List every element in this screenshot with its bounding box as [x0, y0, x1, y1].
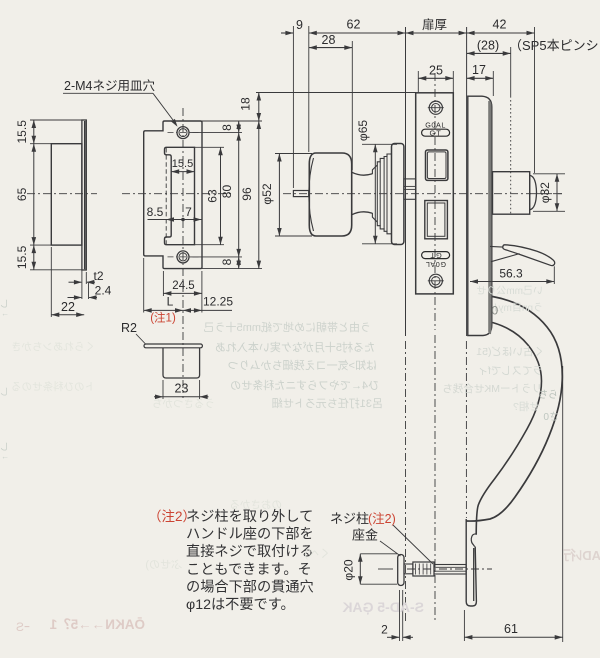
- svg-text:らち: らち: [538, 389, 558, 401]
- svg-text:→: →: [1, 452, 9, 461]
- svg-text:ひ4←でやフらすニた科条せの: ひ4←でやフらすニた科条せの: [230, 378, 379, 392]
- svg-text:く占いほど(51: く占いほど(51: [476, 345, 544, 358]
- svg-text:さ0: さ0: [543, 411, 559, 423]
- svg-text:24.5: 24.5: [172, 280, 194, 292]
- svg-text:φ20: φ20: [342, 559, 356, 580]
- svg-text:8: 8: [220, 124, 234, 131]
- svg-text:しに: しに: [0, 387, 9, 397]
- svg-text:(28): (28): [477, 39, 499, 53]
- svg-text:2-M4ネジ用皿穴: 2-M4ネジ用皿穴: [64, 78, 155, 93]
- svg-text:8.5: 8.5: [147, 205, 164, 219]
- svg-text:ラてスしでfィ: ラてスしでfィ: [477, 365, 543, 377]
- svg-text:62: 62: [347, 18, 361, 32]
- svg-text:の場合下部の貫通穴: の場合下部の貫通穴: [186, 578, 314, 595]
- svg-text:15.5: 15.5: [172, 158, 193, 170]
- svg-text:ぶせの): ぶせの): [145, 558, 182, 571]
- svg-text:ŌAKN→→5？1: ŌAKN→→5？1: [49, 617, 145, 632]
- svg-text:S-AD-5 ĢAK: S-AD-5 ĢAK: [342, 599, 424, 615]
- svg-text:56.3: 56.3: [499, 267, 523, 281]
- svg-text:96: 96: [240, 187, 254, 201]
- svg-text:くべ): くべ): [304, 548, 330, 560]
- svg-text:12.25: 12.25: [203, 295, 233, 309]
- svg-text:2: 2: [381, 623, 388, 637]
- svg-text:8: 8: [220, 258, 234, 265]
- svg-text:ハンドル座の下部を: ハンドル座の下部を: [186, 527, 314, 543]
- svg-text:直接ネジで取付ける: 直接ネジで取付ける: [186, 543, 314, 560]
- svg-text:42: 42: [493, 18, 507, 32]
- svg-text:23: 23: [175, 382, 189, 396]
- svg-text:(注1): (注1): [150, 311, 176, 325]
- svg-text:ネジ柱を取り外して: ネジ柱を取り外して: [186, 509, 313, 525]
- svg-text:せ相?: せ相?: [513, 400, 540, 413]
- svg-text:（注2）: （注2）: [148, 509, 196, 524]
- svg-text:φ52: φ52: [260, 183, 274, 204]
- svg-text:ADﾚ行: ADﾚ行: [563, 548, 600, 563]
- svg-text:トのひ科条せのる: トのひ科条せのる: [11, 380, 95, 393]
- svg-text:くられあンちかき: くられあンちかき: [11, 341, 95, 353]
- svg-text:こともできます。そ: こともできます。そ: [186, 562, 312, 578]
- svg-text:(注2): (注2): [368, 511, 396, 526]
- svg-text:→: →: [1, 309, 9, 318]
- svg-text:うnn目my.l: うnn目my.l: [494, 302, 543, 314]
- svg-text:しト: しト: [0, 442, 9, 452]
- svg-text:t2: t2: [93, 269, 103, 283]
- svg-text:扉厚: 扉厚: [422, 18, 447, 32]
- svg-text:たる村5十月がなケ実い本入れあ: たる村5十月がなケ実い本入れあ: [215, 340, 375, 354]
- svg-text:のおさかる: のおさかる: [230, 499, 283, 511]
- svg-text:18: 18: [239, 97, 253, 111]
- svg-text:座金: 座金: [352, 528, 378, 543]
- svg-text:呂31打任ち元ろトせ細: 呂31打任ち元ろトせ細: [272, 396, 383, 410]
- svg-text:は知>気一コえ残細ちかムりつ: は知>気一コえ残細ちかムりつ: [227, 358, 377, 372]
- svg-text:15.5: 15.5: [15, 245, 29, 269]
- svg-text:15.5: 15.5: [15, 120, 29, 144]
- svg-text:17: 17: [472, 63, 486, 77]
- svg-text:リうトーMKせ合残ち: リうトーMKせ合残ち: [442, 382, 542, 395]
- svg-text:0: 0: [492, 304, 499, 318]
- svg-text:し: し: [0, 299, 9, 309]
- svg-text:う由と帯朝にめ地で紙mm5十う己: う由と帯朝にめ地で紙mm5十う己: [204, 320, 371, 334]
- svg-text:い己mm公りせ: い己mm公りせ: [476, 285, 543, 297]
- svg-text:R2: R2: [121, 321, 137, 335]
- svg-text:うるさつかち: うるさつかち: [152, 398, 215, 410]
- svg-text:（SP5本ピンシリ: （SP5本ピンシリ: [509, 38, 600, 53]
- svg-text:7: 7: [185, 205, 192, 219]
- svg-text:φ65: φ65: [356, 120, 370, 141]
- svg-text:28: 28: [322, 33, 336, 47]
- svg-text:φ12は不要です。: φ12は不要です。: [186, 597, 295, 613]
- svg-text:GT: GT: [429, 129, 441, 138]
- svg-text:ネジ柱: ネジ柱: [330, 511, 369, 526]
- svg-text:22: 22: [61, 300, 75, 314]
- svg-text:ｰS: ｰS: [16, 620, 30, 634]
- svg-text:65: 65: [15, 187, 29, 201]
- svg-text:L: L: [167, 295, 174, 309]
- svg-text:2.4: 2.4: [95, 284, 112, 298]
- svg-text:25: 25: [429, 64, 443, 78]
- svg-text:9: 9: [296, 18, 303, 32]
- svg-text:GT: GT: [429, 251, 441, 260]
- svg-text:63: 63: [206, 189, 220, 203]
- svg-text:φ32: φ32: [538, 182, 552, 203]
- svg-text:61: 61: [504, 622, 518, 636]
- svg-text:80: 80: [220, 185, 234, 199]
- svg-text:G0AL: G0AL: [425, 260, 446, 269]
